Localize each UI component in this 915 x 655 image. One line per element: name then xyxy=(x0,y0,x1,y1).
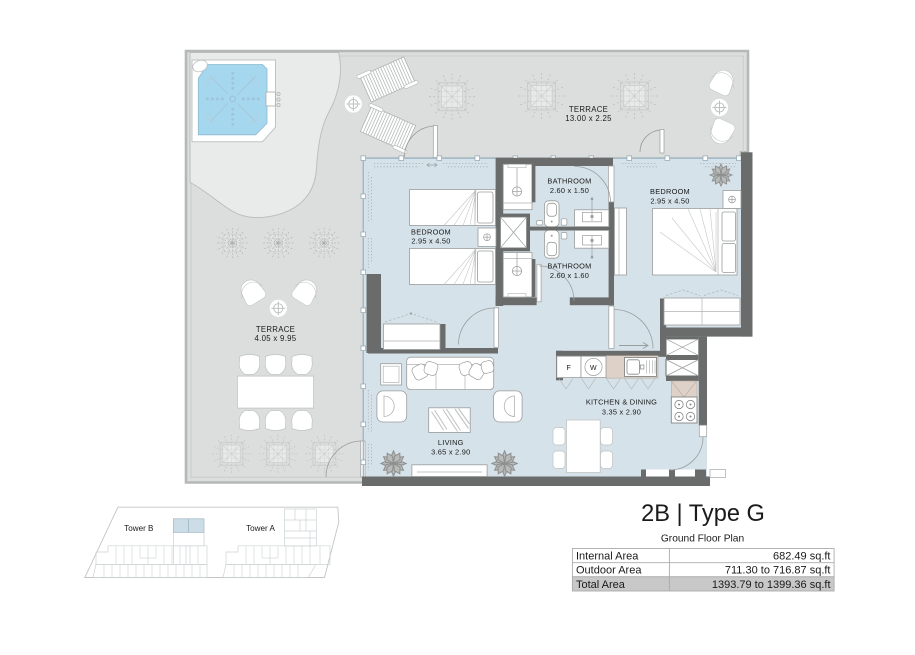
svg-text:2.60 x 1.60: 2.60 x 1.60 xyxy=(550,271,589,280)
svg-text:2B | Type G: 2B | Type G xyxy=(641,501,765,527)
svg-text:BATHROOM: BATHROOM xyxy=(547,177,591,186)
svg-text:W: W xyxy=(590,365,597,372)
svg-text:3.65 x 2.90: 3.65 x 2.90 xyxy=(431,447,470,456)
svg-text:Total Area: Total Area xyxy=(576,579,626,591)
svg-text:F: F xyxy=(567,365,571,372)
svg-text:Tower A: Tower A xyxy=(246,524,275,533)
svg-text:1393.79 to 1399.36 sq.ft: 1393.79 to 1399.36 sq.ft xyxy=(712,579,831,591)
svg-text:Tower B: Tower B xyxy=(124,524,153,533)
svg-text:BEDROOM: BEDROOM xyxy=(650,187,690,196)
svg-text:4.05 x 9.95: 4.05 x 9.95 xyxy=(255,334,297,343)
svg-text:3.35 x 2.90: 3.35 x 2.90 xyxy=(602,408,641,417)
svg-text:Ground Floor Plan: Ground Floor Plan xyxy=(661,534,744,545)
svg-text:2.95 x 4.50: 2.95 x 4.50 xyxy=(411,237,450,246)
svg-text:711.30 to 716.87 sq.ft: 711.30 to 716.87 sq.ft xyxy=(725,565,831,577)
svg-text:Internal Area: Internal Area xyxy=(576,551,639,563)
svg-text:2.95 x 4.50: 2.95 x 4.50 xyxy=(650,196,689,205)
svg-text:KITCHEN & DINING: KITCHEN & DINING xyxy=(586,397,657,406)
svg-text:LIVING: LIVING xyxy=(438,438,464,447)
svg-text:TERRACE: TERRACE xyxy=(256,325,295,334)
svg-text:Outdoor Area: Outdoor Area xyxy=(576,565,642,577)
svg-text:682.49 sq.ft: 682.49 sq.ft xyxy=(773,551,831,563)
svg-text:BEDROOM: BEDROOM xyxy=(411,227,451,236)
svg-text:BATHROOM: BATHROOM xyxy=(547,262,591,271)
svg-text:2.60 x 1.50: 2.60 x 1.50 xyxy=(550,186,589,195)
svg-text:TERRACE: TERRACE xyxy=(569,105,608,114)
svg-text:13.00 x 2.25: 13.00 x 2.25 xyxy=(565,114,612,123)
